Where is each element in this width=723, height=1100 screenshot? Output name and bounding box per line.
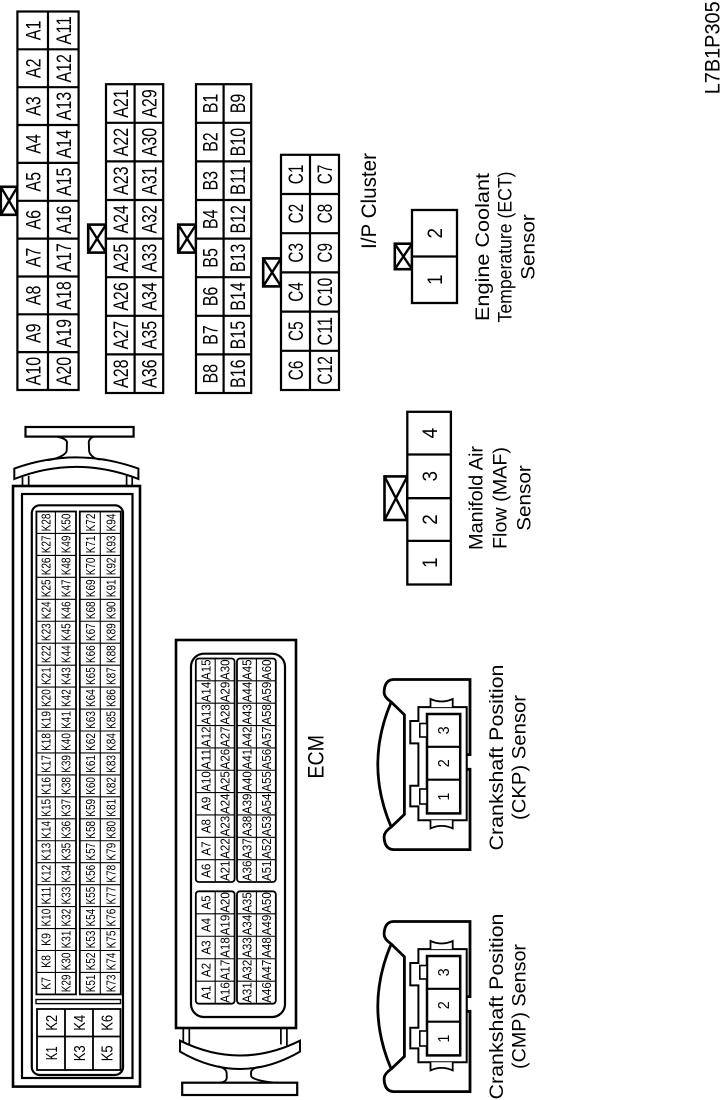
svg-text:K73: K73 bbox=[103, 975, 118, 993]
svg-text:A23: A23 bbox=[218, 816, 233, 837]
svg-text:K37: K37 bbox=[59, 799, 74, 817]
svg-text:A53: A53 bbox=[259, 816, 274, 837]
svg-text:3: 3 bbox=[436, 726, 453, 734]
svg-text:A18: A18 bbox=[53, 281, 76, 310]
svg-text:K19: K19 bbox=[39, 711, 54, 729]
svg-text:A43: A43 bbox=[240, 704, 255, 725]
svg-text:A23: A23 bbox=[110, 166, 133, 195]
svg-text:A57: A57 bbox=[259, 726, 274, 747]
svg-text:A26: A26 bbox=[218, 749, 233, 770]
svg-text:B9: B9 bbox=[227, 94, 250, 114]
svg-text:K64: K64 bbox=[83, 689, 98, 707]
svg-text:K93: K93 bbox=[103, 536, 118, 554]
svg-text:K72: K72 bbox=[83, 514, 98, 532]
svg-text:A16: A16 bbox=[218, 982, 233, 1003]
svg-text:A60: A60 bbox=[259, 659, 274, 680]
svg-text:K46: K46 bbox=[59, 601, 74, 619]
svg-text:2: 2 bbox=[436, 1001, 453, 1009]
svg-text:A41: A41 bbox=[240, 749, 255, 770]
svg-text:A12: A12 bbox=[53, 54, 76, 83]
svg-text:K45: K45 bbox=[59, 623, 74, 641]
svg-text:A18: A18 bbox=[218, 937, 233, 958]
svg-text:A26: A26 bbox=[110, 282, 133, 311]
svg-text:K48: K48 bbox=[59, 558, 74, 576]
svg-text:2: 2 bbox=[419, 514, 442, 525]
svg-text:A3: A3 bbox=[22, 96, 45, 116]
svg-text:A36: A36 bbox=[139, 359, 162, 388]
svg-text:A24: A24 bbox=[218, 794, 233, 815]
svg-text:K43: K43 bbox=[59, 667, 74, 685]
svg-text:K15: K15 bbox=[39, 799, 54, 817]
svg-text:B4: B4 bbox=[200, 209, 223, 229]
svg-text:K14: K14 bbox=[39, 821, 54, 839]
svg-text:A59: A59 bbox=[259, 682, 274, 703]
svg-text:A35: A35 bbox=[139, 321, 162, 350]
svg-text:3: 3 bbox=[436, 968, 453, 976]
svg-text:A17: A17 bbox=[53, 243, 76, 272]
svg-text:K38: K38 bbox=[59, 777, 74, 795]
svg-text:A20: A20 bbox=[53, 357, 76, 386]
svg-text:K39: K39 bbox=[59, 755, 74, 773]
svg-text:K2: K2 bbox=[44, 1015, 61, 1031]
svg-text:K27: K27 bbox=[39, 536, 54, 554]
svg-text:I/P Cluster: I/P Cluster bbox=[357, 153, 381, 249]
svg-text:A22: A22 bbox=[218, 838, 233, 859]
svg-text:K13: K13 bbox=[39, 843, 54, 861]
svg-text:A32: A32 bbox=[240, 960, 255, 981]
svg-text:Crankshaft Position: Crankshaft Position bbox=[486, 914, 508, 1100]
svg-text:K25: K25 bbox=[39, 579, 54, 597]
svg-text:K61: K61 bbox=[83, 755, 98, 773]
svg-text:A5: A5 bbox=[198, 895, 213, 909]
svg-text:A46: A46 bbox=[259, 982, 274, 1003]
svg-text:K17: K17 bbox=[39, 755, 54, 773]
svg-text:K66: K66 bbox=[83, 645, 98, 663]
svg-text:K69: K69 bbox=[83, 579, 98, 597]
svg-text:A3: A3 bbox=[198, 940, 213, 954]
svg-text:Manifold Air: Manifold Air bbox=[465, 445, 487, 550]
svg-text:A6: A6 bbox=[22, 210, 45, 230]
svg-text:K75: K75 bbox=[103, 931, 118, 949]
svg-text:K40: K40 bbox=[59, 733, 74, 751]
svg-text:K87: K87 bbox=[103, 667, 118, 685]
svg-text:A34: A34 bbox=[240, 915, 255, 936]
svg-text:K24: K24 bbox=[39, 601, 54, 619]
svg-text:A25: A25 bbox=[218, 771, 233, 792]
svg-text:K85: K85 bbox=[103, 711, 118, 729]
svg-text:A8: A8 bbox=[198, 819, 213, 833]
svg-text:A28: A28 bbox=[218, 704, 233, 725]
svg-text:A14: A14 bbox=[198, 682, 213, 703]
svg-text:C5: C5 bbox=[285, 321, 308, 341]
svg-text:A15: A15 bbox=[53, 168, 76, 197]
svg-text:C2: C2 bbox=[285, 204, 308, 224]
svg-text:A39: A39 bbox=[240, 794, 255, 815]
svg-text:K5: K5 bbox=[100, 1045, 117, 1061]
svg-text:A14: A14 bbox=[53, 130, 76, 159]
svg-text:B11: B11 bbox=[227, 166, 250, 195]
svg-text:1: 1 bbox=[436, 793, 453, 801]
svg-text:K41: K41 bbox=[59, 711, 74, 729]
svg-text:C8: C8 bbox=[314, 204, 337, 224]
svg-text:A52: A52 bbox=[259, 838, 274, 859]
svg-text:K7: K7 bbox=[39, 977, 54, 990]
svg-text:K22: K22 bbox=[39, 645, 54, 663]
svg-text:K30: K30 bbox=[59, 953, 74, 971]
svg-text:K53: K53 bbox=[83, 931, 98, 949]
svg-text:Flow (MAF): Flow (MAF) bbox=[490, 447, 512, 549]
svg-text:A11: A11 bbox=[198, 749, 213, 770]
svg-text:K52: K52 bbox=[83, 953, 98, 971]
svg-text:K44: K44 bbox=[59, 645, 74, 663]
svg-text:K67: K67 bbox=[83, 623, 98, 641]
svg-text:A20: A20 bbox=[218, 892, 233, 913]
svg-text:A4: A4 bbox=[198, 918, 213, 932]
svg-text:K65: K65 bbox=[83, 667, 98, 685]
svg-text:A8: A8 bbox=[22, 286, 45, 306]
svg-text:K16: K16 bbox=[39, 777, 54, 795]
svg-text:A13: A13 bbox=[198, 704, 213, 725]
svg-text:B10: B10 bbox=[227, 128, 250, 157]
svg-text:A34: A34 bbox=[139, 282, 162, 311]
svg-text:A45: A45 bbox=[240, 659, 255, 680]
svg-text:K51: K51 bbox=[83, 975, 98, 993]
svg-text:A37: A37 bbox=[240, 838, 255, 859]
svg-text:A27: A27 bbox=[110, 321, 133, 350]
svg-text:A13: A13 bbox=[53, 92, 76, 121]
svg-text:A24: A24 bbox=[110, 205, 133, 234]
svg-text:A31: A31 bbox=[240, 982, 255, 1003]
svg-text:1: 1 bbox=[424, 275, 447, 286]
svg-text:K20: K20 bbox=[39, 689, 54, 707]
svg-text:A40: A40 bbox=[240, 771, 255, 792]
svg-text:A19: A19 bbox=[218, 915, 233, 936]
svg-text:K35: K35 bbox=[59, 843, 74, 861]
svg-text:C4: C4 bbox=[285, 282, 308, 302]
svg-text:K68: K68 bbox=[83, 601, 98, 619]
svg-text:K81: K81 bbox=[103, 799, 118, 817]
svg-text:K1: K1 bbox=[44, 1046, 61, 1060]
svg-text:B13: B13 bbox=[227, 244, 250, 273]
svg-text:A49: A49 bbox=[259, 915, 274, 936]
svg-text:K42: K42 bbox=[59, 689, 74, 707]
svg-text:K88: K88 bbox=[103, 645, 118, 663]
svg-text:K3: K3 bbox=[72, 1045, 89, 1061]
svg-text:K55: K55 bbox=[83, 887, 98, 905]
svg-text:K91: K91 bbox=[103, 579, 118, 597]
svg-text:K26: K26 bbox=[39, 558, 54, 576]
svg-text:B7: B7 bbox=[200, 325, 223, 345]
svg-text:B8: B8 bbox=[200, 364, 223, 384]
svg-text:A21: A21 bbox=[218, 861, 233, 882]
svg-text:A33: A33 bbox=[139, 244, 162, 273]
svg-text:K50: K50 bbox=[59, 514, 74, 532]
svg-text:K60: K60 bbox=[83, 777, 98, 795]
svg-text:A1: A1 bbox=[198, 985, 213, 999]
svg-text:K84: K84 bbox=[103, 733, 118, 751]
svg-text:A47: A47 bbox=[259, 960, 274, 981]
svg-text:K29: K29 bbox=[59, 975, 74, 993]
svg-text:A4: A4 bbox=[22, 134, 45, 154]
svg-text:K12: K12 bbox=[39, 865, 54, 883]
svg-text:A9: A9 bbox=[198, 797, 213, 811]
svg-text:A19: A19 bbox=[53, 319, 76, 348]
svg-text:A42: A42 bbox=[240, 726, 255, 747]
svg-text:A58: A58 bbox=[259, 704, 274, 725]
svg-text:A31: A31 bbox=[139, 166, 162, 195]
svg-text:Sensor: Sensor bbox=[517, 214, 539, 280]
svg-text:K57: K57 bbox=[83, 843, 98, 861]
svg-text:A12: A12 bbox=[198, 726, 213, 747]
svg-text:A48: A48 bbox=[259, 937, 274, 958]
svg-text:C11: C11 bbox=[314, 317, 337, 346]
svg-text:C12: C12 bbox=[314, 356, 337, 385]
svg-text:A36: A36 bbox=[240, 861, 255, 882]
svg-text:A56: A56 bbox=[259, 749, 274, 770]
svg-text:A16: A16 bbox=[53, 205, 76, 234]
svg-text:B15: B15 bbox=[227, 321, 250, 350]
svg-text:(CKP) Sensor: (CKP) Sensor bbox=[508, 694, 530, 820]
svg-text:K10: K10 bbox=[39, 909, 54, 927]
svg-text:3: 3 bbox=[419, 471, 442, 482]
svg-text:K49: K49 bbox=[59, 536, 74, 554]
svg-text:Engine Coolant: Engine Coolant bbox=[472, 172, 494, 321]
svg-text:A44: A44 bbox=[240, 682, 255, 703]
svg-text:K62: K62 bbox=[83, 733, 98, 751]
svg-text:C10: C10 bbox=[314, 278, 337, 307]
svg-text:K8: K8 bbox=[39, 955, 54, 968]
svg-text:K78: K78 bbox=[103, 865, 118, 883]
svg-text:K86: K86 bbox=[103, 689, 118, 707]
svg-text:A5: A5 bbox=[22, 172, 45, 192]
svg-text:A7: A7 bbox=[198, 841, 213, 855]
svg-text:B6: B6 bbox=[200, 287, 223, 307]
svg-text:K28: K28 bbox=[39, 514, 54, 532]
svg-text:A50: A50 bbox=[259, 892, 274, 913]
svg-text:K54: K54 bbox=[83, 909, 98, 927]
svg-text:A35: A35 bbox=[240, 892, 255, 913]
svg-text:1: 1 bbox=[436, 1035, 453, 1043]
svg-text:A17: A17 bbox=[218, 960, 233, 981]
svg-text:K11: K11 bbox=[39, 887, 54, 905]
svg-text:A55: A55 bbox=[259, 771, 274, 792]
svg-text:K47: K47 bbox=[59, 579, 74, 597]
svg-text:K36: K36 bbox=[59, 821, 74, 839]
svg-text:K18: K18 bbox=[39, 733, 54, 751]
svg-text:B3: B3 bbox=[200, 171, 223, 191]
svg-text:A1: A1 bbox=[22, 21, 45, 41]
svg-text:A54: A54 bbox=[259, 794, 274, 815]
svg-text:(CMP) Sensor: (CMP) Sensor bbox=[508, 943, 530, 1069]
svg-text:Sensor: Sensor bbox=[514, 465, 536, 531]
svg-text:K80: K80 bbox=[103, 821, 118, 839]
svg-text:K56: K56 bbox=[83, 865, 98, 883]
svg-text:K9: K9 bbox=[39, 933, 54, 946]
svg-text:C9: C9 bbox=[314, 243, 337, 263]
svg-text:A32: A32 bbox=[139, 205, 162, 234]
svg-text:K76: K76 bbox=[103, 909, 118, 927]
svg-text:C3: C3 bbox=[285, 243, 308, 263]
svg-text:B16: B16 bbox=[227, 359, 250, 388]
svg-text:K79: K79 bbox=[103, 843, 118, 861]
svg-text:A2: A2 bbox=[22, 59, 45, 79]
svg-text:K31: K31 bbox=[59, 931, 74, 949]
svg-text:A22: A22 bbox=[110, 128, 133, 157]
svg-text:K74: K74 bbox=[103, 953, 118, 971]
svg-text:A29: A29 bbox=[218, 682, 233, 703]
svg-text:K63: K63 bbox=[83, 711, 98, 729]
svg-text:C1: C1 bbox=[285, 165, 308, 185]
svg-text:K23: K23 bbox=[39, 623, 54, 641]
svg-text:K89: K89 bbox=[103, 623, 118, 641]
svg-text:4: 4 bbox=[419, 428, 442, 439]
svg-text:2: 2 bbox=[424, 228, 447, 239]
svg-text:K58: K58 bbox=[83, 821, 98, 839]
svg-text:A10: A10 bbox=[198, 771, 213, 792]
svg-text:A33: A33 bbox=[240, 937, 255, 958]
svg-text:B14: B14 bbox=[227, 282, 250, 311]
svg-text:A30: A30 bbox=[139, 128, 162, 157]
svg-text:L7B1P305: L7B1P305 bbox=[702, 1, 723, 94]
svg-text:A51: A51 bbox=[259, 861, 274, 882]
svg-text:A38: A38 bbox=[240, 816, 255, 837]
svg-text:2: 2 bbox=[436, 759, 453, 767]
svg-text:A9: A9 bbox=[22, 323, 45, 343]
svg-text:K59: K59 bbox=[83, 799, 98, 817]
svg-text:K83: K83 bbox=[103, 755, 118, 773]
svg-text:K34: K34 bbox=[59, 865, 74, 883]
svg-text:A27: A27 bbox=[218, 726, 233, 747]
svg-text:B12: B12 bbox=[227, 205, 250, 234]
svg-text:ECM: ECM bbox=[304, 735, 329, 779]
svg-text:K94: K94 bbox=[103, 514, 118, 532]
svg-text:K82: K82 bbox=[103, 777, 118, 795]
svg-text:A2: A2 bbox=[198, 963, 213, 977]
svg-text:K71: K71 bbox=[83, 536, 98, 554]
svg-text:K32: K32 bbox=[59, 909, 74, 927]
svg-text:1: 1 bbox=[419, 557, 442, 568]
svg-text:K77: K77 bbox=[103, 887, 118, 905]
svg-text:A7: A7 bbox=[22, 248, 45, 268]
svg-text:K70: K70 bbox=[83, 558, 98, 576]
svg-text:C7: C7 bbox=[314, 165, 337, 185]
svg-text:A29: A29 bbox=[139, 89, 162, 118]
svg-text:K90: K90 bbox=[103, 601, 118, 619]
svg-text:B1: B1 bbox=[200, 94, 223, 114]
svg-text:A15: A15 bbox=[198, 659, 213, 680]
svg-text:B5: B5 bbox=[200, 248, 223, 268]
svg-text:Crankshaft Position: Crankshaft Position bbox=[486, 665, 508, 851]
svg-text:A28: A28 bbox=[110, 359, 133, 388]
svg-text:A11: A11 bbox=[53, 16, 76, 45]
svg-text:K33: K33 bbox=[59, 887, 74, 905]
svg-text:A21: A21 bbox=[110, 89, 133, 118]
svg-text:K21: K21 bbox=[39, 667, 54, 685]
svg-text:A25: A25 bbox=[110, 244, 133, 273]
svg-text:B2: B2 bbox=[200, 132, 223, 152]
svg-text:C6: C6 bbox=[285, 361, 308, 381]
svg-text:A10: A10 bbox=[22, 357, 45, 386]
svg-text:K92: K92 bbox=[103, 558, 118, 576]
svg-text:A6: A6 bbox=[198, 864, 213, 878]
svg-text:A30: A30 bbox=[218, 659, 233, 680]
svg-text:K4: K4 bbox=[72, 1015, 89, 1031]
svg-text:K6: K6 bbox=[100, 1015, 117, 1031]
svg-text:Temperature (ECT): Temperature (ECT) bbox=[495, 172, 517, 323]
